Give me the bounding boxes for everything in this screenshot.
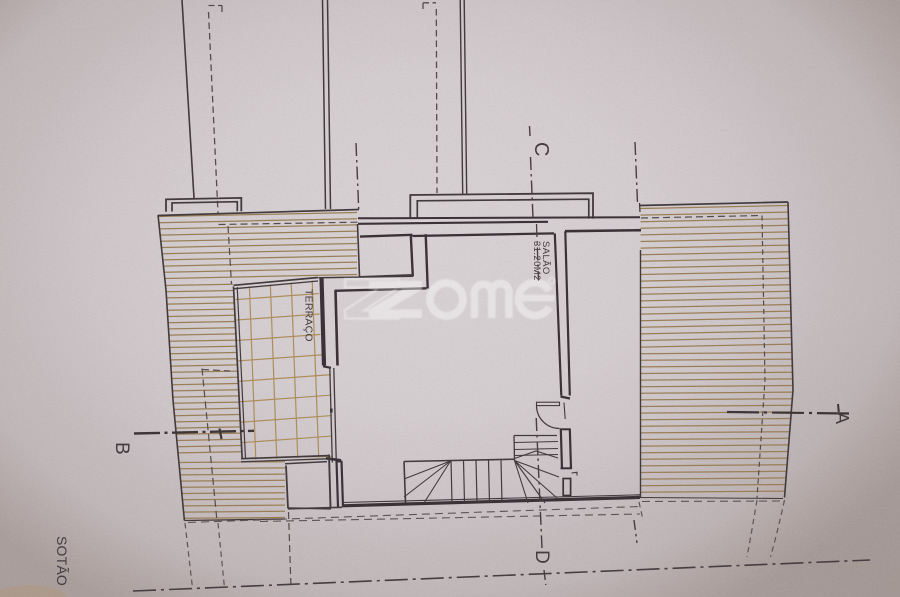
svg-text:A: A <box>832 412 852 424</box>
svg-text:TERRAÇO: TERRAÇO <box>303 289 315 342</box>
svg-text:B: B <box>111 442 132 455</box>
svg-text:31.20M2: 31.20M2 <box>531 241 542 281</box>
svg-text:SOTÃO: SOTÃO <box>54 536 70 586</box>
svg-text:D: D <box>531 550 552 564</box>
svg-text:C: C <box>530 142 552 156</box>
